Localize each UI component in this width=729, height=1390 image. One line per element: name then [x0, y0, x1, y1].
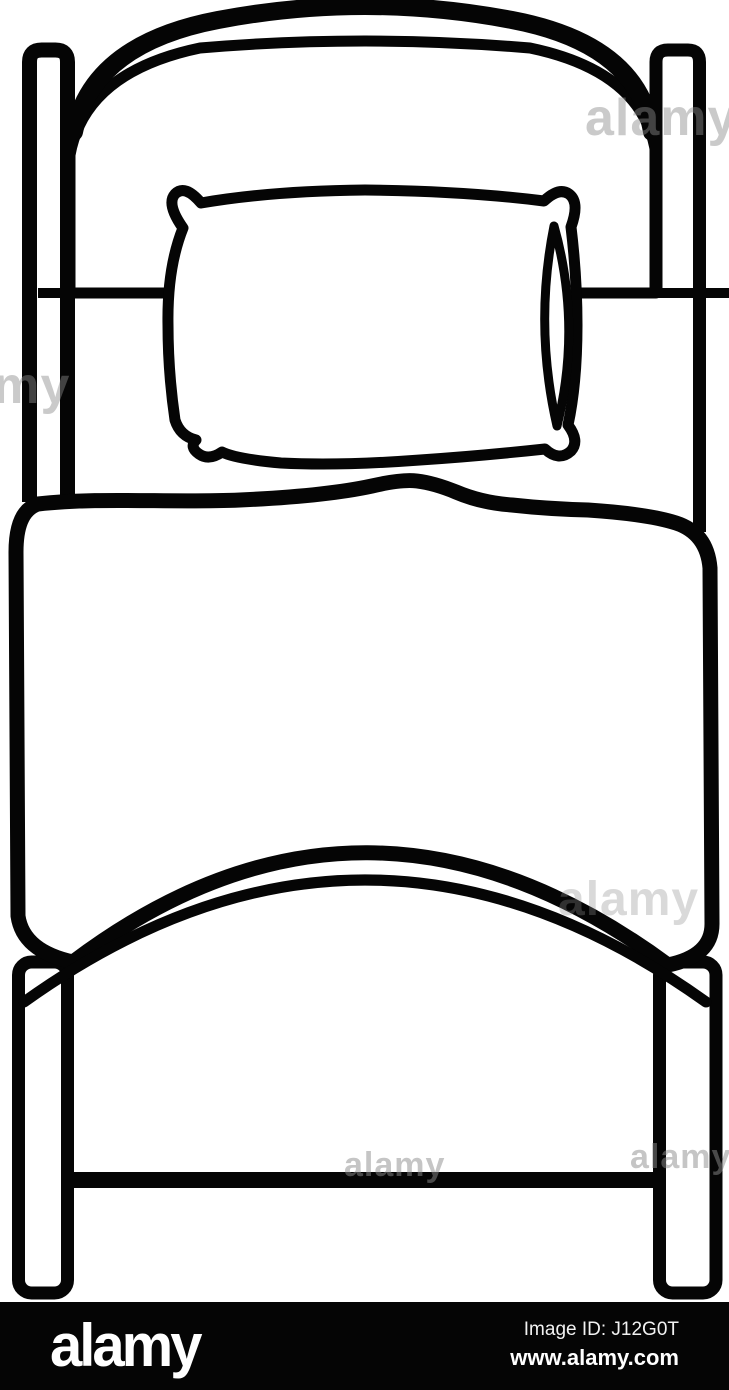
pillow-icon	[168, 190, 577, 464]
headboard-left-post	[30, 50, 68, 502]
image-id-label: Image ID: J12G0T	[510, 1318, 679, 1343]
website-url: www.alamy.com	[510, 1343, 679, 1374]
headboard-right-post	[656, 50, 700, 295]
footer-meta: Image ID: J12G0T www.alamy.com	[510, 1318, 679, 1373]
blanket	[16, 481, 712, 965]
alamy-logo: alamy	[50, 1316, 199, 1376]
left-leg	[19, 962, 68, 1293]
bed-top-view-illustration	[0, 0, 729, 1302]
right-leg	[660, 962, 717, 1293]
pillow-side-fold	[545, 226, 569, 426]
stock-image-page: alamy alamy alamy alamy alamy alamy Imag…	[0, 0, 729, 1390]
footer-bar: alamy Image ID: J12G0T www.alamy.com	[0, 1302, 729, 1390]
